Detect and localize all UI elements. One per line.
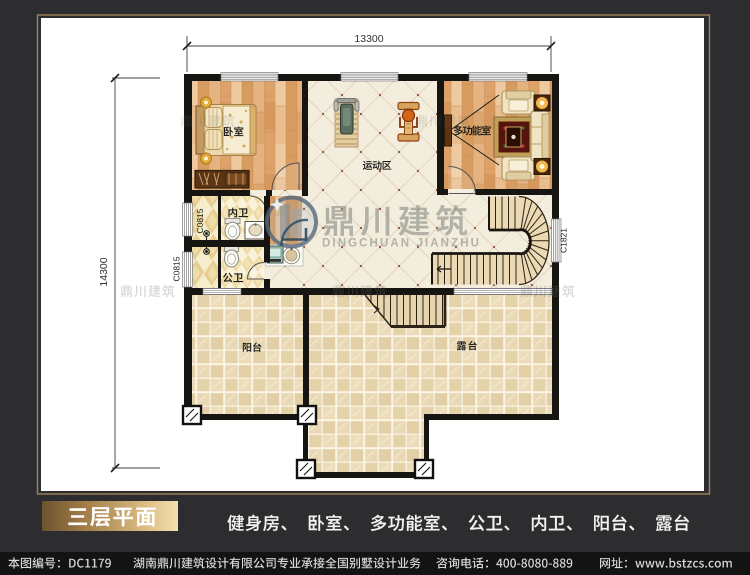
svg-text:C1821: C1821	[559, 228, 569, 253]
svg-text:C0815: C0815	[195, 208, 205, 233]
svg-text:13300: 13300	[354, 33, 383, 45]
svg-text:C0815: C0815	[172, 256, 182, 281]
svg-text:DINGCHUAN JIANZHU: DINGCHUAN JIANZHU	[322, 238, 481, 250]
svg-text:14300: 14300	[98, 257, 110, 286]
